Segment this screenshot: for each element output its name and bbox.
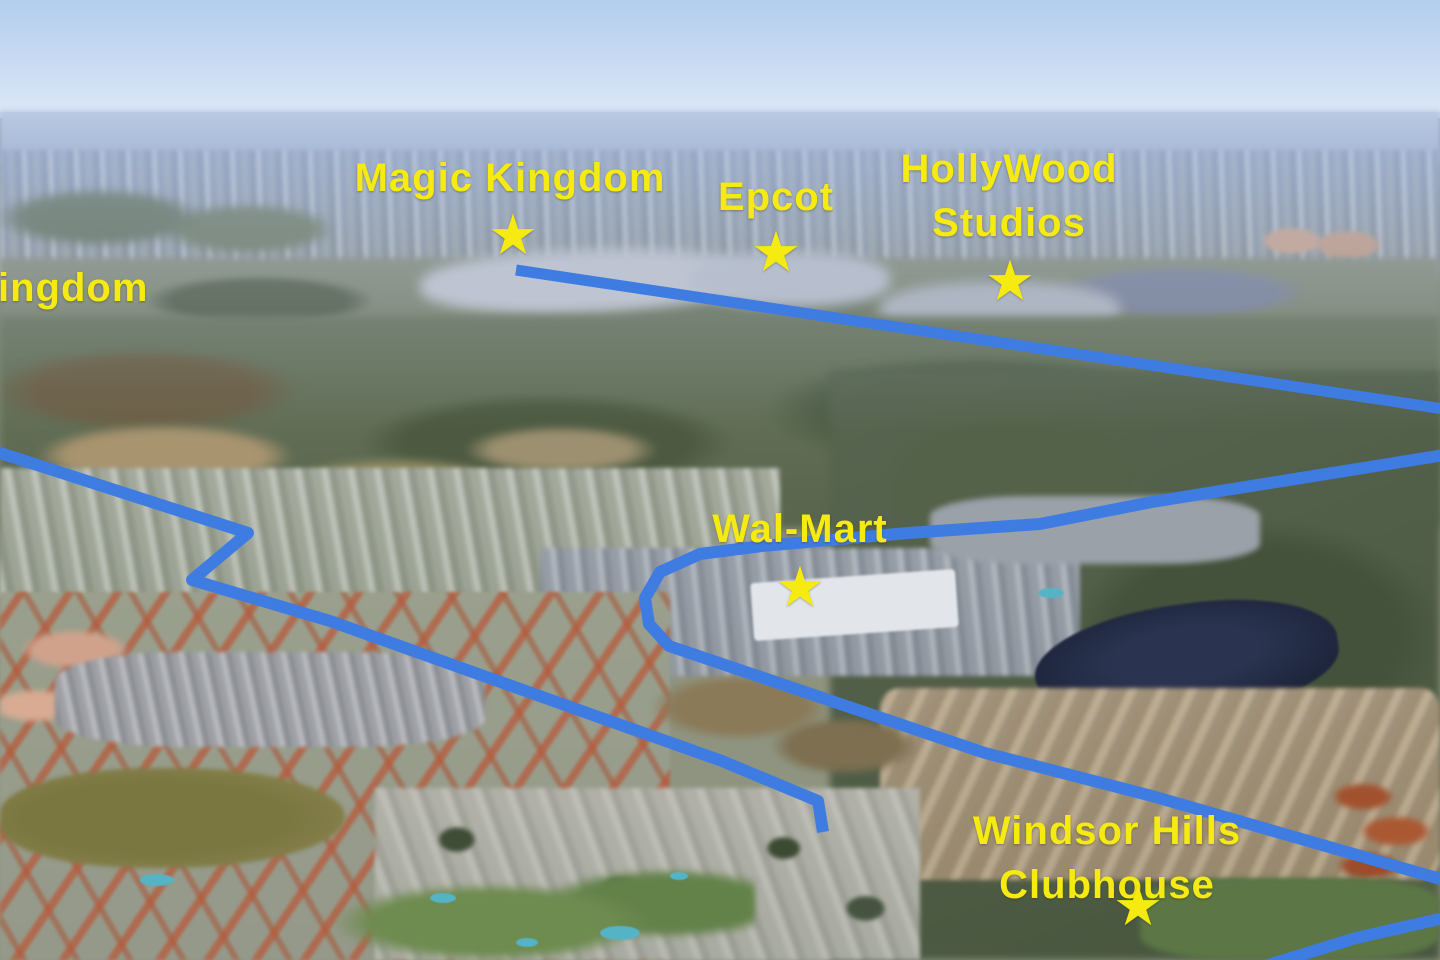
label-windsor-hills-clubhouse: Windsor Hills Clubhouse <box>941 804 1274 912</box>
label-animal-kingdom-partial: ingdom <box>0 261 148 315</box>
label-wal-mart: Wal-Mart <box>712 502 887 556</box>
label-magic-kingdom: Magic Kingdom <box>355 151 666 205</box>
star-windsor-hills-clubhouse: ★ <box>1113 878 1163 934</box>
label-hollywood-studios: HollyWood Studios <box>900 142 1117 250</box>
label-layer: ingdomMagic Kingdom★Epcot★HollyWood Stud… <box>0 0 1440 960</box>
label-epcot: Epcot <box>718 170 834 224</box>
star-magic-kingdom: ★ <box>488 207 538 263</box>
aerial-map: ingdomMagic Kingdom★Epcot★HollyWood Stud… <box>0 0 1440 960</box>
star-wal-mart: ★ <box>775 559 825 615</box>
star-hollywood-studios: ★ <box>985 253 1035 309</box>
star-epcot: ★ <box>751 224 801 280</box>
